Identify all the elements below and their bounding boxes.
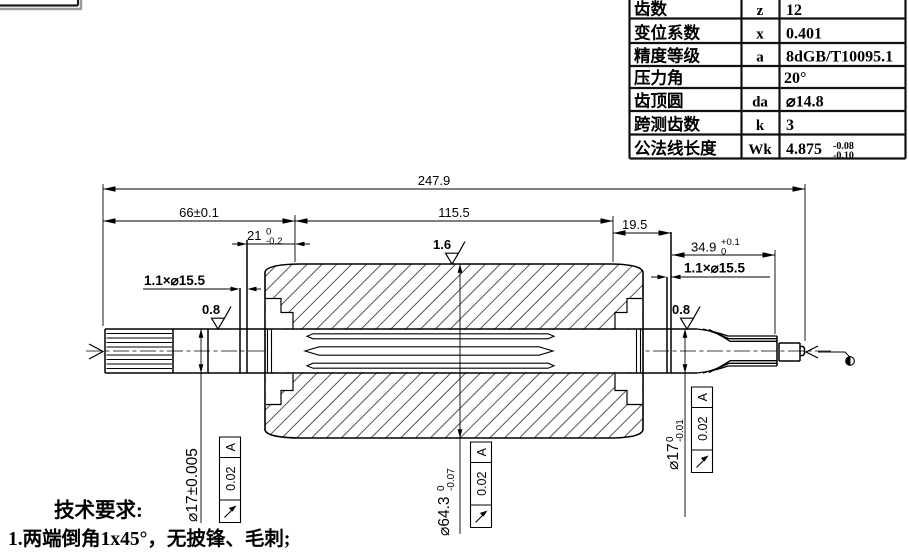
engineering-drawing: 齿数 z 12 变位系数 x 0.401 精度等级 a 8dGB/T10095.… [0,0,909,553]
technical-notes: 技术要求: 1.两端倒角1x45°，无披锋、毛刺; [8,498,290,550]
dim-arrowheads [658,275,681,280]
dim-lower-tol: -0.07 [446,468,457,491]
row-name: 变位系数 [634,23,701,43]
dim-right-step: 19.5 [613,217,671,233]
corner-box-fragment [0,0,82,9]
row-value-lower-tol: -0.10 [833,151,854,162]
datum-letter: A [224,442,238,451]
dim-lower-tol: -0.01 [675,419,686,442]
dim-tail-length: 34.9 +0.1 0 [672,237,775,258]
gear-parameter-table: 齿数 z 12 变位系数 x 0.401 精度等级 a 8dGB/T10095.… [630,0,906,162]
notes-title: 技术要求: [54,498,143,522]
notes-item: 1.两端倒角1x45°，无披锋、毛刺; [8,527,290,550]
roughness-value: 0.8 [672,302,690,317]
dim-overall: 247.9 [103,173,805,189]
shaft-bore-band [266,330,642,372]
table-row: 精度等级 a 8dGB/T10095.1 [634,46,893,66]
surface-finish-core: 1.6 [433,237,465,264]
dim-lower-tol: 0 [721,247,726,258]
dim-dia-right: ⌀17 0 -0.01 [665,329,687,517]
row-name: 齿顶圆 [634,91,684,111]
row-value: 3 [786,117,794,134]
table-row: 齿数 z 12 [634,0,802,19]
row-value: 0.401 [786,26,822,43]
end-center-symbol [818,352,854,365]
row-symbol: Wk [748,142,772,158]
dim-text: 19.5 [622,217,647,232]
corner-box-lines [0,0,78,6]
row-symbol: z [757,3,764,19]
dim-groove-right: 1.1×⌀15.5 [651,261,770,280]
dim-lower-tol: -0.2 [266,236,282,247]
row-value: ⌀14.8 [786,94,824,111]
rotor-core-block [265,264,643,438]
row-name: 跨测齿数 [634,114,701,134]
dim-text: 66±0.1 [179,205,219,220]
dim-left-length: 66±0.1 [103,205,295,221]
dim-step-21: 21 0 -0.2 [232,227,310,248]
dim-text: ⌀64.3 [436,497,453,537]
surface-finish-left: 0.8 [202,302,231,329]
row-symbol: k [756,118,765,134]
dim-text: ⌀17±0.005 [184,448,201,522]
row-symbol: a [756,50,764,66]
row-value: 4.875 [786,141,822,158]
datum-letter: A [475,447,489,456]
surface-finish-right: 0.8 [672,302,700,329]
dim-text: 34.9 [691,240,716,255]
tolerance-value: 0.02 [696,416,710,440]
dim-dia-left: ⌀17±0.005 [184,329,203,523]
table-row: 齿顶圆 da ⌀14.8 [634,91,824,111]
datum-letter: A [696,392,710,401]
row-name: 公法线长度 [634,138,717,158]
tolerance-frame-left: A 0.02 [220,437,241,523]
dim-mid-length: 115.5 [295,205,613,221]
dim-groove-left: 1.1×⌀15.5 [143,273,261,291]
dim-text: 1.1×⌀15.5 [684,261,746,276]
dim-text: 247.9 [418,173,451,188]
tolerance-frame-core: A 0.02 [471,442,492,528]
dim-arrowheads [231,287,257,292]
row-value: 20° [784,70,806,87]
table-row: 变位系数 x 0.401 [634,23,822,43]
row-value: 8dGB/T10095.1 [786,49,893,66]
dim-text: 1.1×⌀15.5 [144,273,206,288]
roughness-value: 0.8 [202,302,220,317]
center-hole-icon [806,346,818,358]
tolerance-value: 0.02 [224,466,238,490]
table-row: 跨测齿数 k 3 [634,114,794,134]
row-value: 12 [786,2,802,19]
end-symbol-leader [818,352,850,357]
dim-text: ⌀17 [665,443,682,470]
center-hole-icon [89,344,103,359]
row-symbol: x [756,27,764,43]
row-name: 压力角 [634,68,684,88]
row-name: 精度等级 [634,46,701,66]
tolerance-value: 0.02 [475,471,489,495]
roughness-value: 1.6 [433,237,451,252]
dim-text: 115.5 [438,205,470,220]
tolerance-frame-right: A 0.02 [692,387,713,473]
row-name: 齿数 [634,0,668,19]
dim-text: 21 [247,228,261,243]
row-symbol: da [752,95,768,111]
